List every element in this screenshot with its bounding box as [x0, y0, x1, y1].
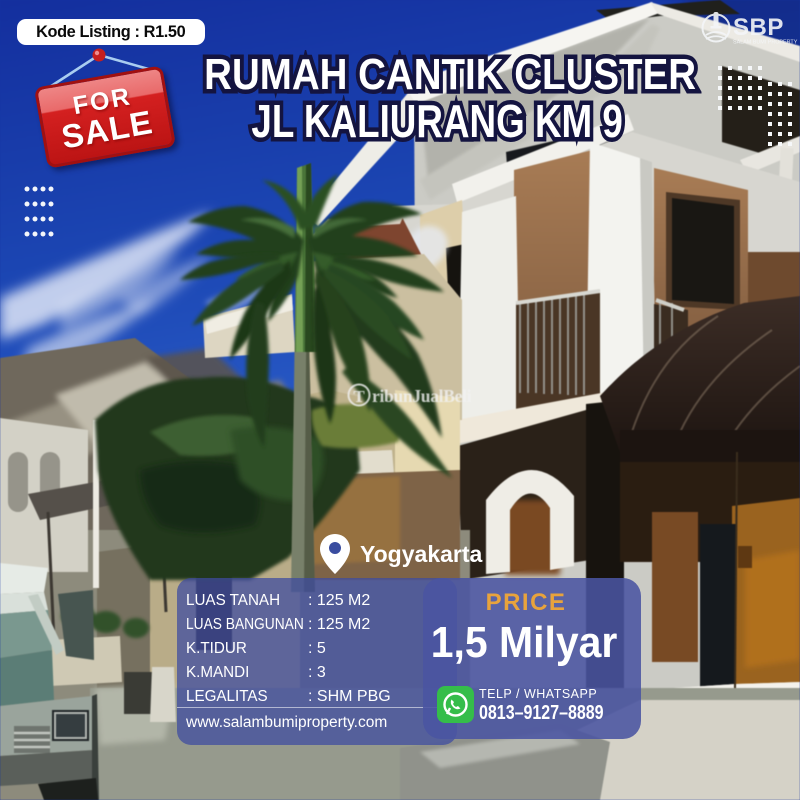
svg-text:ribunJualBeli: ribunJualBeli: [372, 386, 472, 406]
svg-text:SBP: SBP: [733, 14, 784, 41]
svg-text:SALAM BUMI PROPERTY: SALAM BUMI PROPERTY: [733, 40, 798, 46]
svg-text:T: T: [353, 387, 365, 406]
